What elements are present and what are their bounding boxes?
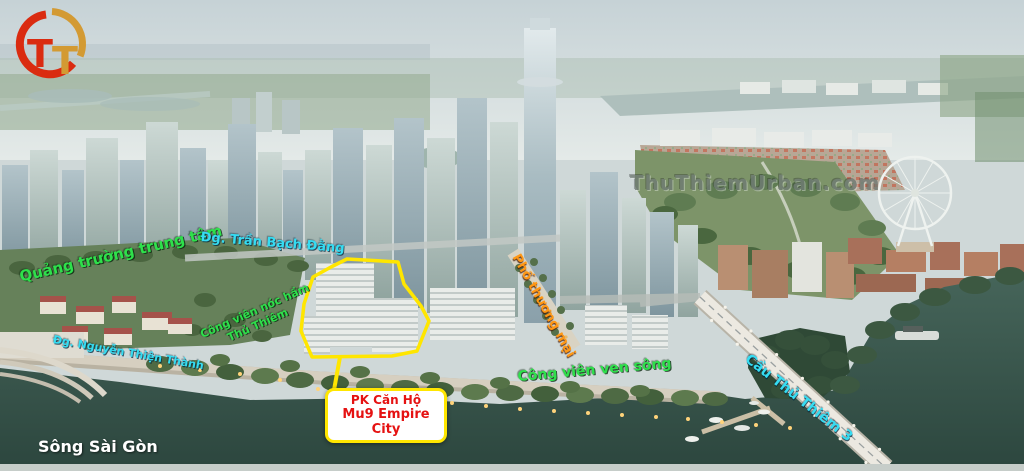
callout-line2: Mu9 Empire City xyxy=(328,407,444,437)
aerial-map: T T Quảng trường trung tâm Đg. Trần Bạch… xyxy=(0,0,1024,471)
logo-letter-t1: T xyxy=(27,32,53,76)
tt-logo: T T xyxy=(12,6,88,82)
bottom-strip xyxy=(0,464,1024,471)
label-river: Sông Sài Gòn xyxy=(38,438,158,456)
mu9-callout-box: PK Căn Hộ Mu9 Empire City xyxy=(325,388,447,443)
callout-line1: PK Căn Hộ xyxy=(328,393,444,407)
watermark: ThuThiemUrban.com xyxy=(630,171,880,195)
logo-letter-t2: T xyxy=(52,39,78,82)
